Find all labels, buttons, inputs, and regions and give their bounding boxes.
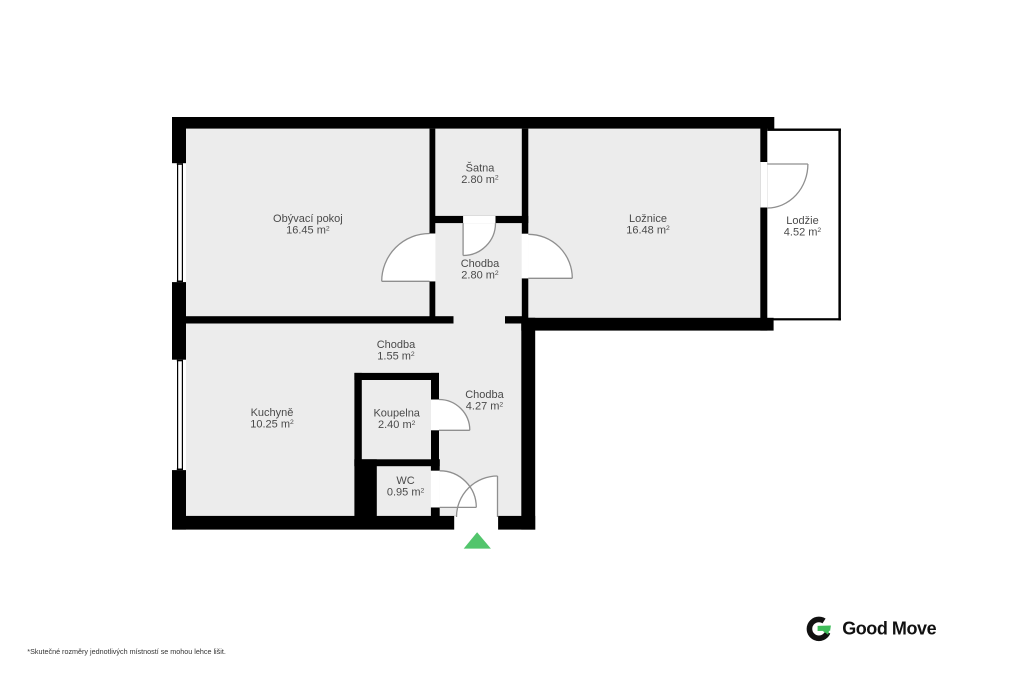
svg-text:4.52 m2: 4.52 m2 bbox=[784, 226, 822, 238]
svg-text:Chodba: Chodba bbox=[461, 258, 500, 270]
svg-text:16.48 m2: 16.48 m2 bbox=[626, 224, 670, 236]
svg-text:Chodba: Chodba bbox=[465, 389, 504, 401]
svg-text:1.55 m2: 1.55 m2 bbox=[377, 350, 415, 362]
svg-text:WC: WC bbox=[396, 475, 414, 487]
svg-text:Good Move: Good Move bbox=[842, 619, 936, 639]
svg-text:2.80 m2: 2.80 m2 bbox=[461, 174, 499, 186]
svg-text:4.27 m2: 4.27 m2 bbox=[466, 401, 504, 413]
svg-text:Chodba: Chodba bbox=[377, 339, 416, 351]
svg-text:Obývací pokoj: Obývací pokoj bbox=[273, 213, 343, 225]
svg-text:*Skutečné rozměry jednotlivých: *Skutečné rozměry jednotlivých místností… bbox=[27, 647, 226, 656]
svg-text:Ložnice: Ložnice bbox=[629, 213, 667, 225]
svg-text:Šatna: Šatna bbox=[466, 161, 496, 174]
svg-text:Koupelna: Koupelna bbox=[373, 408, 420, 420]
svg-text:16.45 m2: 16.45 m2 bbox=[286, 225, 330, 237]
svg-text:2.40 m2: 2.40 m2 bbox=[378, 419, 416, 431]
svg-text:Kuchyně: Kuchyně bbox=[251, 407, 294, 419]
svg-text:Lodžie: Lodžie bbox=[786, 215, 818, 227]
svg-text:2.80 m2: 2.80 m2 bbox=[461, 269, 499, 281]
svg-text:0.95 m2: 0.95 m2 bbox=[387, 487, 425, 499]
svg-text:10.25 m2: 10.25 m2 bbox=[250, 418, 294, 430]
